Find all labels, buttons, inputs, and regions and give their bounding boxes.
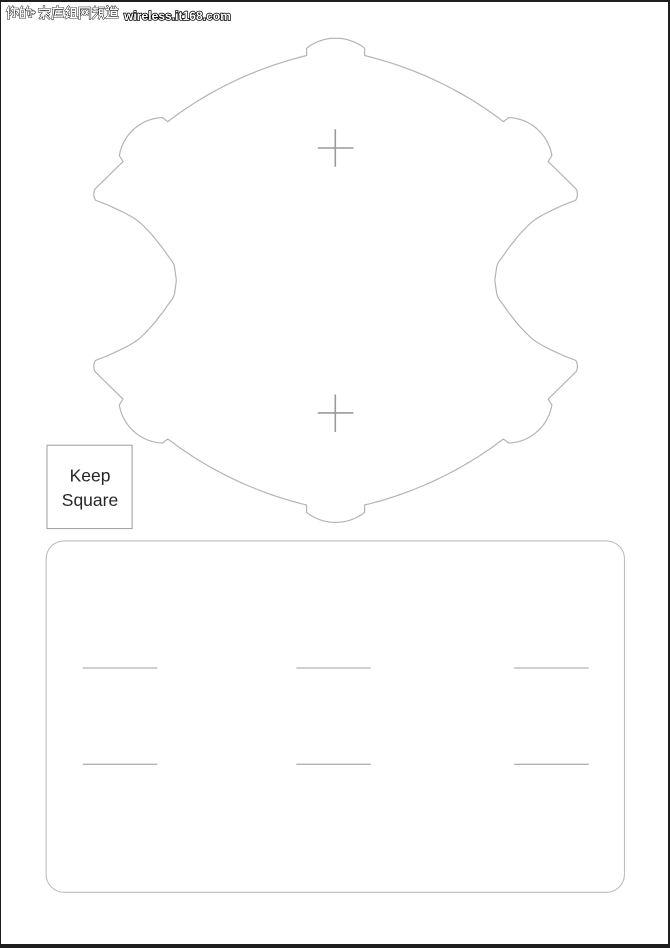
svg-text:Square: Square bbox=[62, 490, 118, 510]
svg-text:wireless.it168.com: wireless.it168.com bbox=[123, 9, 231, 23]
svg-text:Keep: Keep bbox=[70, 466, 111, 486]
